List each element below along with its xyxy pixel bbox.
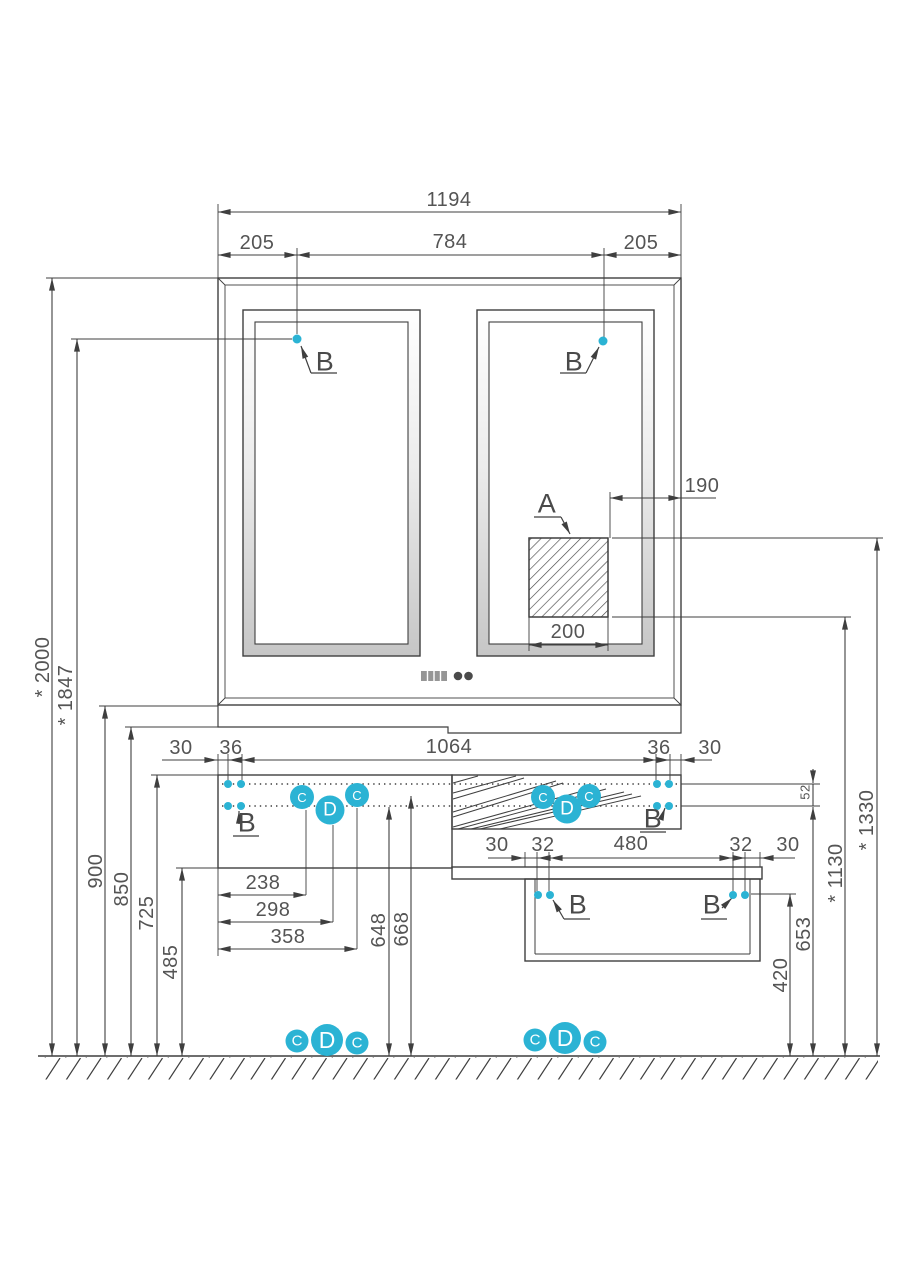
dim-mirror-spacing: 784 [433,232,468,252]
marker-b-mirror-left: B [316,349,335,376]
power-button-icon [454,672,463,681]
fitting-marker-d: D [311,1024,343,1056]
dim-mirror-offset-right: 205 [624,233,659,253]
marker-b-mirror-right: B [565,349,584,376]
clock-display [421,671,473,681]
installation-drawing: 1194 205 784 205 190 200 A B B 30 36 106… [0,0,900,1273]
fitting-marker-d: D [549,1022,581,1054]
dim-cabinet-row-30r: 30 [698,738,721,758]
dim-cabinet-row-36r: 36 [647,738,670,758]
dim-cabinet-row-30l: 30 [169,738,192,758]
dim-gap-52: 52 [799,784,812,799]
floor [38,1056,880,1080]
fitting-marker-c: C [584,1031,607,1054]
dim-height-900: 900 [86,854,106,889]
dim-drawer-238: 238 [246,873,281,893]
dim-lower-row-30r: 30 [776,835,799,855]
light-button-icon [464,672,473,681]
dim-height-1847: * 1847 [56,665,76,726]
dim-height-420: 420 [771,958,791,993]
dim-height-485: 485 [161,945,181,980]
fitting-marker-c: C [577,784,601,808]
marker-b-vanity-right: B [644,806,663,833]
dim-height-850: 850 [112,872,132,907]
dim-drawer-358: 358 [271,927,306,947]
dim-total-width: 1194 [426,190,471,210]
dim-cabinet-row-36l: 36 [219,738,242,758]
dim-height-1130: * 1130 [826,843,846,902]
dim-height-648: 648 [369,913,389,948]
fitting-marker-c: C [290,785,314,809]
marker-b-lower-left: B [569,892,588,919]
fitting-marker-c: C [345,783,369,807]
dim-drawer-298: 298 [256,900,291,920]
outlet-zone [529,538,608,617]
fitting-marker-c: C [346,1032,369,1055]
dim-cabinet-row-1064: 1064 [426,737,473,757]
fitting-marker-d: D [316,796,345,825]
fitting-marker-c: C [531,785,555,809]
marker-a-outlet: A [538,491,557,518]
dim-outlet-offset: 190 [685,476,720,496]
dim-height-725: 725 [137,896,157,931]
fitting-marker-c: C [524,1029,547,1052]
dim-lower-row-32r: 32 [729,835,752,855]
vanity-cabinet [218,775,681,868]
dim-height-1330: * 1330 [857,790,877,851]
dim-lower-row-30l: 30 [485,835,508,855]
extension-lines [46,204,883,956]
dim-height-653: 653 [794,917,814,952]
dim-lower-row-480: 480 [614,834,649,854]
dim-lower-row-32l: 32 [531,835,554,855]
dim-height-668: 668 [392,912,412,947]
marker-b-lower-right: B [703,892,722,919]
fitting-marker-c: C [286,1030,309,1053]
dim-mirror-offset-left: 205 [240,233,275,253]
marker-b-vanity-left: B [238,810,257,837]
dim-outlet-width: 200 [551,622,586,642]
dim-height-2000: * 2000 [33,637,53,698]
